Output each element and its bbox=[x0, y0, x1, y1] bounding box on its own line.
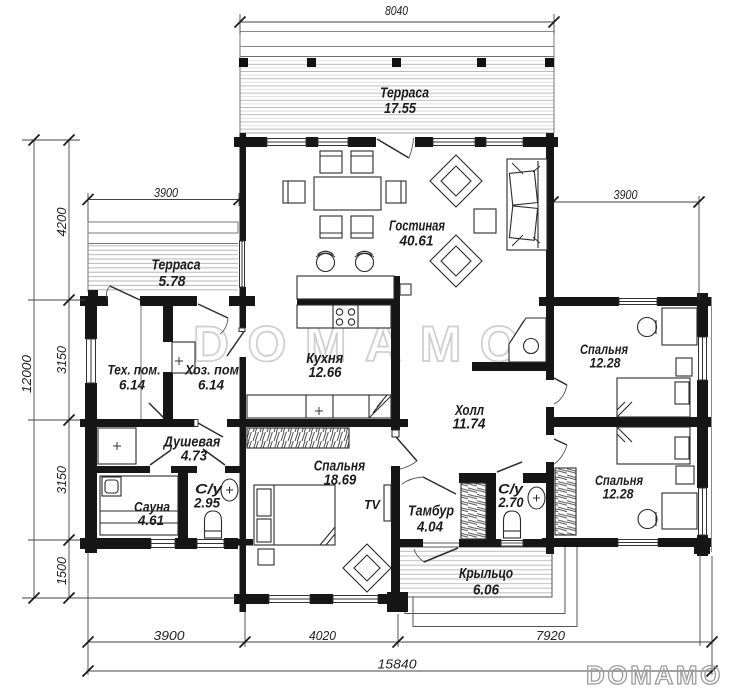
svg-text:Терраса: Терраса bbox=[380, 85, 429, 102]
svg-text:Тамбур: Тамбур bbox=[408, 503, 454, 520]
svg-text:7920: 7920 bbox=[536, 628, 566, 643]
svg-text:3150: 3150 bbox=[54, 465, 69, 494]
svg-text:2.95: 2.95 bbox=[193, 495, 220, 511]
svg-text:Хоз. пом: Хоз. пом bbox=[184, 362, 239, 378]
svg-text:6.06: 6.06 bbox=[473, 582, 500, 599]
svg-text:15840: 15840 bbox=[378, 657, 418, 672]
svg-text:40.61: 40.61 bbox=[399, 233, 434, 250]
svg-text:Тех. пом.: Тех. пом. bbox=[108, 362, 161, 378]
svg-text:1500: 1500 bbox=[54, 556, 69, 585]
svg-text:8040: 8040 bbox=[385, 3, 409, 18]
svg-text:4020: 4020 bbox=[309, 628, 337, 643]
svg-text:3900: 3900 bbox=[154, 185, 179, 200]
svg-text:12.66: 12.66 bbox=[309, 364, 343, 381]
svg-text:2.70: 2.70 bbox=[498, 494, 524, 510]
svg-text:12.28: 12.28 bbox=[603, 486, 634, 502]
svg-text:3900: 3900 bbox=[154, 628, 186, 643]
svg-text:Терраса: Терраса bbox=[152, 257, 201, 274]
svg-text:12000: 12000 bbox=[19, 354, 34, 393]
svg-text:12.28: 12.28 bbox=[590, 355, 621, 371]
svg-text:17.55: 17.55 bbox=[384, 100, 417, 117]
svg-text:3150: 3150 bbox=[54, 345, 69, 374]
svg-text:11.74: 11.74 bbox=[453, 416, 487, 433]
svg-text:6.14: 6.14 bbox=[119, 377, 145, 393]
svg-text:TV: TV bbox=[364, 497, 381, 512]
svg-text:6.14: 6.14 bbox=[198, 377, 224, 393]
svg-text:Крыльцо: Крыльцо bbox=[459, 565, 513, 582]
svg-text:4200: 4200 bbox=[54, 207, 69, 237]
svg-text:3900: 3900 bbox=[614, 187, 639, 202]
svg-text:4.73: 4.73 bbox=[180, 448, 207, 465]
svg-text:4.61: 4.61 bbox=[137, 512, 164, 528]
svg-text:4.04: 4.04 bbox=[416, 519, 443, 536]
svg-text:5.78: 5.78 bbox=[159, 273, 187, 290]
svg-text:DOMAMO: DOMAMO bbox=[586, 660, 723, 690]
svg-text:18.69: 18.69 bbox=[324, 472, 357, 489]
